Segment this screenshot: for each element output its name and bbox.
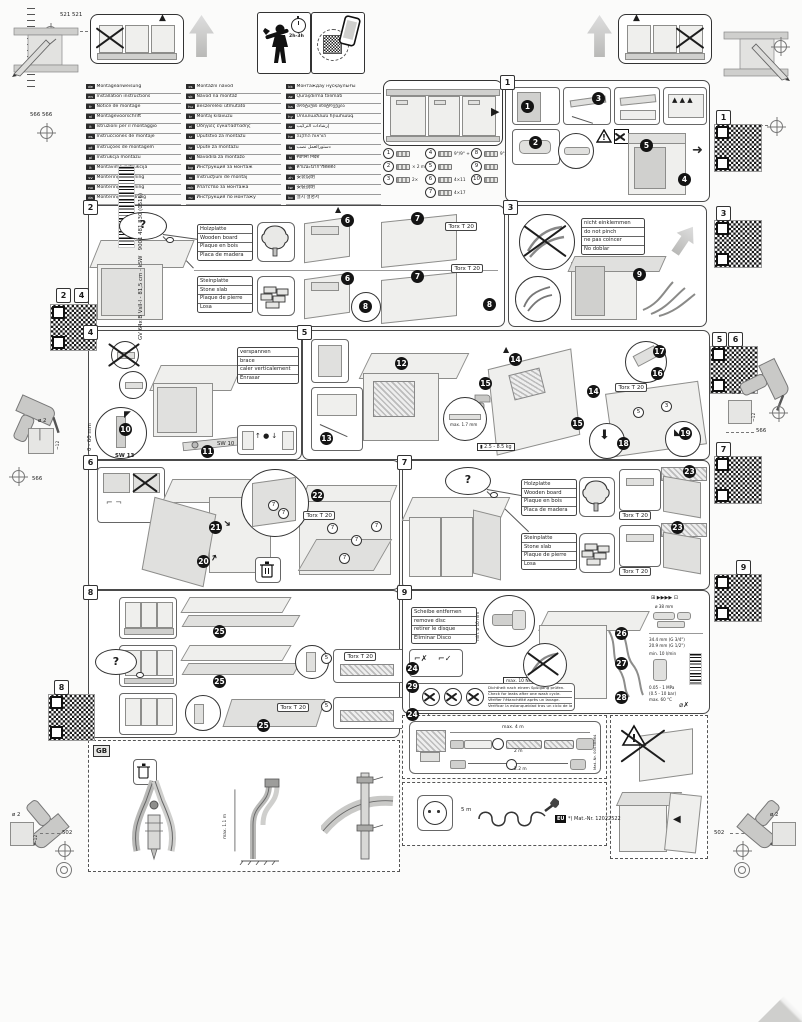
product-code-vertical: GV 64x B VsII-I - 81,5 cm - kSW 9001 481… <box>138 120 144 340</box>
no-softener-icon: ⌀✗ <box>679 701 689 709</box>
language-entry: heהוראות התקנה *ניתן להשיג בשירות הלקוחו… <box>286 134 381 144</box>
region-badge: EU <box>555 815 566 823</box>
step-badge: 19 <box>679 427 692 440</box>
step-badge: 14 <box>587 385 600 398</box>
step-badge: 22 <box>311 489 324 502</box>
qr-label-7: 7 <box>716 442 731 457</box>
bricks-icon <box>258 277 292 313</box>
qr-label-9: 9 <box>736 560 751 575</box>
smartphone-icon <box>335 13 365 51</box>
part-item: 89°/9° + a×b <box>471 148 505 161</box>
panel-number: 7 <box>397 455 412 470</box>
part-icon <box>396 177 410 183</box>
part-item: 1 <box>383 148 423 161</box>
parts-list: 12× 2 m32× 49°/9° + a×b564×1174×17 89°/9… <box>383 148 505 202</box>
step-badge: 25 <box>257 719 270 732</box>
step-badge: 18 <box>617 437 630 450</box>
language-code-badge: ro <box>186 175 195 180</box>
registration-mark <box>736 844 749 857</box>
language-code-badge: sl <box>186 155 195 160</box>
language-code-badge: ka <box>286 104 295 109</box>
step-badge: 28 <box>615 691 628 704</box>
language-entry: tw安裝說明 *可向客戶服務索取 <box>286 185 381 195</box>
appliance-rear-icon <box>416 730 446 752</box>
step-badge: 14 <box>509 353 522 366</box>
step-badge: 1 <box>521 100 534 113</box>
part-icon <box>438 190 452 196</box>
x-mark-icon <box>675 21 705 53</box>
language-entry: deMontageanweisung *Über Kundendienst er… <box>86 84 181 94</box>
dimension-566: 566 <box>756 428 766 434</box>
torx-label: Torx T 20 <box>619 567 651 576</box>
qr-label-5: 5 <box>712 332 727 347</box>
part-icon <box>484 177 498 183</box>
part-item: 49°/9° + a×b <box>425 148 469 161</box>
wrong-cabinet-box: ▲ <box>618 14 712 64</box>
registration-mark <box>774 40 787 53</box>
pencil-cabinet-icon <box>716 22 796 82</box>
leak-check-box: 29 Dichtheit nach einem Spülgang prüfen.… <box>409 683 575 711</box>
step-badge: 10 <box>119 423 132 436</box>
language-entry: plInstrukcja montażu *Można zamówić w au… <box>86 155 181 165</box>
wood-label-box: HolzplatteWooden board Plaque en boisPla… <box>521 479 577 516</box>
big-up-arrow-icon <box>586 15 613 57</box>
question-bubble: ? <box>445 467 491 495</box>
language-entry: roInstrucţiuni de montaj *Disponibile pr… <box>186 175 281 185</box>
qr-label-1: 1 <box>716 110 731 125</box>
drain-height-label: max. 1.1 m <box>223 799 228 839</box>
installer-time-box: 2h-3h <box>257 12 311 74</box>
pointer-arrow-icon: ▶ <box>491 105 499 118</box>
dimension-521: 521 521 <box>60 12 82 18</box>
language-code-badge: en <box>86 94 95 99</box>
socket-icon <box>417 795 453 831</box>
page-fold-corner <box>758 978 802 1022</box>
language-list-col3: kkМонтаждау нұсқаулығы *Сервис қызметі а… <box>286 84 381 215</box>
wood-label-box: HolzplatteWooden board Plaque en boisPla… <box>197 224 253 261</box>
flow-label: min. 10 l/min <box>649 651 676 656</box>
step-badge: 24 <box>406 708 419 721</box>
part-icon <box>484 151 498 157</box>
language-entry: hiस्थापना निर्देश *ग्राहक सेवा से उपलब्ध <box>286 155 381 165</box>
height-range-label: 0 - 60 mm <box>87 415 93 451</box>
install-time-label: 2h-3h <box>289 34 304 39</box>
language-entry: hyՄոնտաժման հրահանգ *Հասանելի է սպասարկմ… <box>286 114 381 124</box>
language-entry: elΟδηγίες εγκατάστασης *Διατίθεται από τ… <box>186 124 281 134</box>
language-entry: slNavodila za montažo *Na voljo pri serv… <box>186 155 281 165</box>
language-entry: frNotice de montage *Disponible auprès d… <box>86 104 181 114</box>
language-code-badge: bg <box>186 165 195 170</box>
attach-arrow-icon: ◀ <box>673 814 681 825</box>
step-badge: 15 <box>571 417 584 430</box>
step-badge: 25 <box>213 625 226 638</box>
step-badge: 25 <box>213 675 226 688</box>
hose-seg1-label: 2 m <box>514 749 522 754</box>
part-icon <box>438 177 452 183</box>
hose-seg2-label: 2.2 m <box>514 767 527 772</box>
part-item: 2× 2 m <box>383 161 423 174</box>
cord-length-label: 5 m <box>461 807 471 813</box>
panel-8: 8 ? 25 25 Torx T 20 24 Torx T 20 25 <box>88 590 400 738</box>
language-code-badge: fa <box>286 145 295 150</box>
step-badge: 8 <box>483 298 496 311</box>
dimension-566: 566 <box>32 476 42 482</box>
step-badge: 11 <box>201 445 214 458</box>
language-entry: ptInstruções de montagem *Pode ser adqui… <box>86 145 181 155</box>
brace-label-box: verspannenbrace caler verticalementEnras… <box>237 347 299 384</box>
temp-label: max. 60 °C <box>649 697 672 702</box>
torx-label: Torx T 20 <box>277 703 309 712</box>
panel-9: 9 Scheibe entfernenremove disc retirer l… <box>402 590 710 714</box>
registration-mark <box>58 844 71 857</box>
language-code-badge: ko <box>286 195 295 200</box>
step-badge: 17 <box>653 345 666 358</box>
parts-col3: 89°/9° + a×b910 <box>471 148 505 187</box>
up-arrow-icon: ▲ <box>633 13 640 23</box>
gap-label: max. 1.7 mm <box>450 422 477 427</box>
qr-label-6: 6 <box>728 332 743 347</box>
min-dia-label: min. ø 10 mm <box>475 607 480 641</box>
step-badge: 21 <box>209 521 222 534</box>
language-code-badge: kk <box>286 84 295 89</box>
pressure-label: 0.05 - 1 MPa <box>649 685 674 690</box>
drill-dia-label: ø 2 <box>732 390 740 396</box>
part-item: 74×17 <box>425 187 469 200</box>
part-icon <box>396 164 410 170</box>
power-cord-panel: 5 m EU *) Mat.-Nr. 12022522 <box>402 782 607 846</box>
dimension-502: 502 <box>714 830 724 836</box>
installation-sheet-page: 521 521 ▲ <box>0 0 802 1022</box>
insert-arrow-icon: ➜ <box>692 143 703 158</box>
leak-check-text: Verificar la estanqueidad tras un ciclo … <box>488 704 572 709</box>
up-arrow-icon: ▲ <box>159 13 166 23</box>
drill-dia-label: ø 2 <box>770 812 778 818</box>
dimension-566-566: 566 566 <box>30 112 52 118</box>
panel-1: 1 1 2 3 ▲ ▲ ▲ ! <box>505 80 710 202</box>
panel-number: 8 <box>83 585 98 600</box>
language-entry: csMontážní návod *K dispozici přes servi… <box>186 84 281 94</box>
language-code-badge: th <box>286 165 295 170</box>
step-badge: 6 <box>341 272 354 285</box>
power-mat-number: *) Mat.-Nr. 12022522 <box>568 816 621 822</box>
step-badge: 24 <box>406 662 419 675</box>
hose-extension-panel: max. 4 m 2 m 2.2 m Mat.-Nr. 00038864 <box>402 715 607 779</box>
no-pinch-label-box: nicht einklemmendo not pinch ne pas coin… <box>581 218 645 255</box>
language-code-badge: hy <box>286 114 295 119</box>
language-entry: hrUpute za montažu *Mogu se dobiti u ovl… <box>186 145 281 155</box>
language-code-badge: az <box>286 94 295 99</box>
torx-label: Torx T 20 <box>619 511 651 520</box>
qr-code-panel-1 <box>714 124 762 172</box>
panel-5: 5 13 12 max. 1.7 mm 14 ▲ 15 15 14 ▮ 2.5 … <box>302 330 710 460</box>
qr-label-8: 8 <box>54 680 69 695</box>
door-weight-pictogram: ↑ ● ↓ <box>237 425 297 455</box>
part-item: 10 <box>471 174 505 187</box>
wrench-size-label: SW 13 <box>115 453 134 459</box>
step-badge: 20 <box>197 555 210 568</box>
step-badge: 23 <box>671 521 684 534</box>
warning-triangle-icon: ! <box>596 129 612 143</box>
step-badge: 7 <box>411 270 424 283</box>
qr-label-2: 2 <box>56 288 71 303</box>
power-cable-icon <box>473 797 559 837</box>
panel-number: 6 <box>83 455 98 470</box>
language-entry: trMontaj kılavuzu *Yetkili servisten tem… <box>186 114 281 124</box>
language-code-badge: hr <box>186 145 195 150</box>
door-weight-label: ▮ 2.5 - 8.5 kg <box>477 443 515 451</box>
language-entry: skNávod na montáž *Dostupný cez zákazníc… <box>186 94 281 104</box>
language-code-badge: lt <box>86 165 95 170</box>
step-badge: 8 <box>359 300 372 313</box>
step-badge: 29 <box>406 680 419 693</box>
registration-mark <box>12 470 25 483</box>
language-entry: kkМонтаждау нұсқаулығы *Сервис қызметі а… <box>286 84 381 94</box>
panel-number: 4 <box>83 325 98 340</box>
panel-4: 4 verspannenbrace caler verticalementEnr… <box>88 330 302 460</box>
drill-dia-label: ø 2 <box>12 812 20 818</box>
qr-code-panel-8 <box>48 694 95 741</box>
part-icon <box>484 164 498 170</box>
qr-code-panel-3 <box>714 220 762 268</box>
step-badge: 13 <box>320 432 333 445</box>
drill-dia-label: ø 2 <box>38 418 46 424</box>
registration-mark <box>772 406 785 419</box>
kitchen-overview-box: ▶ <box>383 80 503 146</box>
step-badge: 5 <box>640 139 653 152</box>
step-badge: 23 <box>683 465 696 478</box>
language-entry: azQuraşdırma təlimatı *Müştəri xidmətind… <box>286 94 381 104</box>
x-mark-icon <box>619 722 667 768</box>
language-entry: srUputstvo za montažu *Može se dobiti pr… <box>186 134 281 144</box>
step-badge: 15 <box>479 377 492 390</box>
step-badge: 7 <box>411 212 424 225</box>
torx-label: Torx T 20 <box>445 222 477 231</box>
step-badge: 3 <box>592 92 605 105</box>
part-icon <box>396 151 410 157</box>
language-entry: enInstallation instructions *Available f… <box>86 94 181 104</box>
wrong-cabinet-box: ▲ <box>90 14 184 64</box>
language-code-badge: pl <box>86 155 95 160</box>
language-code-badge: fr <box>86 104 95 109</box>
drill-depth-label: ~12 <box>752 402 757 422</box>
part-item: 5 <box>425 161 469 174</box>
part-item: 32× <box>383 174 423 187</box>
wrench-size-label: SW 10 <box>217 441 234 447</box>
language-entry: thคำแนะนำการติดตั้ง *ขอรับได้จากศูนย์บริ… <box>286 165 381 175</box>
part-item: 9 <box>471 161 505 174</box>
language-code-badge: nl <box>86 114 95 119</box>
qr-code-panel-9 <box>714 574 762 622</box>
step-badge: 12 <box>395 357 408 370</box>
torx-label: Torx T 20 <box>451 264 483 273</box>
language-code-badge: sk <box>186 94 195 99</box>
stopwatch-icon <box>291 18 306 33</box>
step-badge: 26 <box>615 627 628 640</box>
dimension-502: 502 <box>62 830 72 836</box>
language-code-badge: de <box>86 84 95 89</box>
language-entry: mkУпатство за монтажа *Достапно преку се… <box>186 185 281 195</box>
part-icon <box>438 164 452 170</box>
language-code-badge: it <box>86 124 95 129</box>
svg-text:!: ! <box>602 133 606 142</box>
language-code-badge: sr <box>186 134 195 139</box>
language-code-badge: el <box>186 124 195 129</box>
tree-icon <box>258 223 292 259</box>
installer-icon <box>263 22 295 66</box>
language-entry: itIstruzioni per il montaggio *Disponibi… <box>86 124 181 134</box>
step-badge: 27 <box>615 657 628 670</box>
x-mark-icon <box>107 337 141 371</box>
panel-number: 2 <box>83 200 98 215</box>
x-mark-icon <box>95 21 125 53</box>
language-entry: arإرشادات التركيب *متوفرة لدى خدمة العمل… <box>286 124 381 134</box>
stone-label-box: SteinplatteStone slab Plaque de pierreLo… <box>197 276 253 313</box>
drain-hose-icon <box>239 777 309 865</box>
language-code-badge: mk <box>186 185 195 190</box>
water-spec-column: ⊞ ▶▶▶▶ ⊡ ø 38 mm 34.4 mm (G 3/4") 20.9 m… <box>649 595 705 709</box>
parts-col1: 12× 2 m32× <box>383 148 423 187</box>
stone-label-box: SteinplatteStone slab Plaque de pierreLo… <box>521 533 577 570</box>
language-entry: zh安装说明 *可通过客户服务获取 (Customer Service) <box>286 175 381 185</box>
torx-label: Torx T 20 <box>303 511 335 520</box>
language-code-badge: tr <box>186 114 195 119</box>
remove-disc-label-box: Scheibe entfernenremove disc retirer le … <box>411 607 477 644</box>
step-badge: 4 <box>678 173 691 186</box>
torx-label: Torx T 20 <box>615 383 647 392</box>
language-code-badge: es <box>86 134 95 139</box>
no-pinch-icon <box>614 129 629 144</box>
qr-label-4: 4 <box>74 288 89 303</box>
language-entry: huBeszerelési útmutató *Az ügyfélszolgál… <box>186 104 281 114</box>
language-code-badge: hi <box>286 155 295 160</box>
language-code-badge: sv <box>86 175 95 180</box>
drill-depth-label: ~12 <box>56 430 61 450</box>
panel-number: 5 <box>297 325 312 340</box>
panel-2: 2 ? HolzplatteWooden board Plaque en boi… <box>88 205 505 327</box>
language-code-badge: ru <box>186 195 195 200</box>
registration-target <box>56 862 72 878</box>
qr-scan-box <box>311 12 365 74</box>
g34-label: 34.4 mm (G 3/4") <box>649 637 685 642</box>
step-badge: 16 <box>651 367 664 380</box>
panel-6: 6 ⌐ ¬ 21 20 ➜ ➜ 77 22 <box>88 460 400 590</box>
part-item: 64×11 <box>425 174 469 187</box>
language-entry: ruИнструкция по монтажу *Можно получить … <box>186 195 281 205</box>
hose-mat-number: Mat.-Nr. 00038864 <box>592 730 597 770</box>
language-code-badge: hu <box>186 104 195 109</box>
step-badge: 6 <box>341 214 354 227</box>
registration-mark <box>40 126 53 139</box>
question-bubble: ? <box>95 649 137 675</box>
language-code-badge: tw <box>286 185 295 190</box>
language-code-badge: he <box>286 134 295 139</box>
gb-panel: GB max. 1.1 m <box>88 740 400 872</box>
drain-dia-label: ø 38 mm <box>655 604 673 609</box>
big-up-arrow-icon <box>188 15 215 57</box>
language-code-badge: no <box>86 185 95 190</box>
standpipe-icon <box>321 767 395 867</box>
qr-label-3: 3 <box>716 206 731 221</box>
bricks-icon <box>580 534 612 570</box>
panel-7: 7 ? HolzplatteWooden board Plaque en boi… <box>402 460 710 590</box>
step-badge: 2 <box>529 136 542 149</box>
no-pinch-detail <box>519 214 575 270</box>
step-badge: 9 <box>633 268 646 281</box>
registration-target <box>734 862 750 878</box>
part-icon <box>438 151 452 157</box>
route-arrow-icon <box>666 221 702 260</box>
torx-label: Torx T 20 <box>344 652 376 661</box>
language-entry: kaმონტაჟის ინსტრუქცია *ხელმისაწვდომია სე… <box>286 104 381 114</box>
panel-3: 3 nicht einklemmendo not pinch ne pas co… <box>508 205 707 327</box>
no-tip-panel: ! ◀ <box>610 715 708 859</box>
hoses-cables <box>639 266 701 318</box>
qr-code-panel-7 <box>714 456 762 504</box>
pencil-cabinet-icon <box>6 18 86 78</box>
language-list-col2: csMontážní návod *K dispozici přes servi… <box>186 84 281 215</box>
hose-total-label: max. 4 m <box>502 725 524 730</box>
g12-label: 20.9 mm (G 1/2") <box>649 643 685 648</box>
panel-number: 3 <box>503 200 518 215</box>
pressure-bar-label: (0.5 - 10 bar) <box>649 691 676 696</box>
trash-bin-icon <box>256 558 278 580</box>
language-entry: esInstrucciones de montaje *Se puede adq… <box>86 134 181 144</box>
drill-depth-label: ~12 <box>34 824 39 844</box>
panel-number: 9 <box>397 585 412 600</box>
registration-mark <box>770 120 783 133</box>
language-entry: faدستورالعمل نصب *از طریق خدمات مشتریان <box>286 145 381 155</box>
language-entry: ko설치 설명서 *고객 서비스에서 제공 <box>286 195 381 205</box>
language-code-badge: ar <box>286 124 295 129</box>
gb-label: GB <box>93 745 110 757</box>
panel-number: 1 <box>500 75 515 90</box>
pliers-icon <box>115 775 193 867</box>
language-entry: nlMontagevoorschrift *Verkrijgbaar via d… <box>86 114 181 124</box>
tree-icon <box>580 478 612 514</box>
language-code-badge: cs <box>186 84 195 89</box>
language-entry: bgИнструкция за монтаж *Може да се получ… <box>186 165 281 175</box>
parts-col2: 49°/9° + a×b564×1174×17 <box>425 148 469 200</box>
language-code-badge: zh <box>286 175 295 180</box>
language-code-badge: pt <box>86 145 95 150</box>
